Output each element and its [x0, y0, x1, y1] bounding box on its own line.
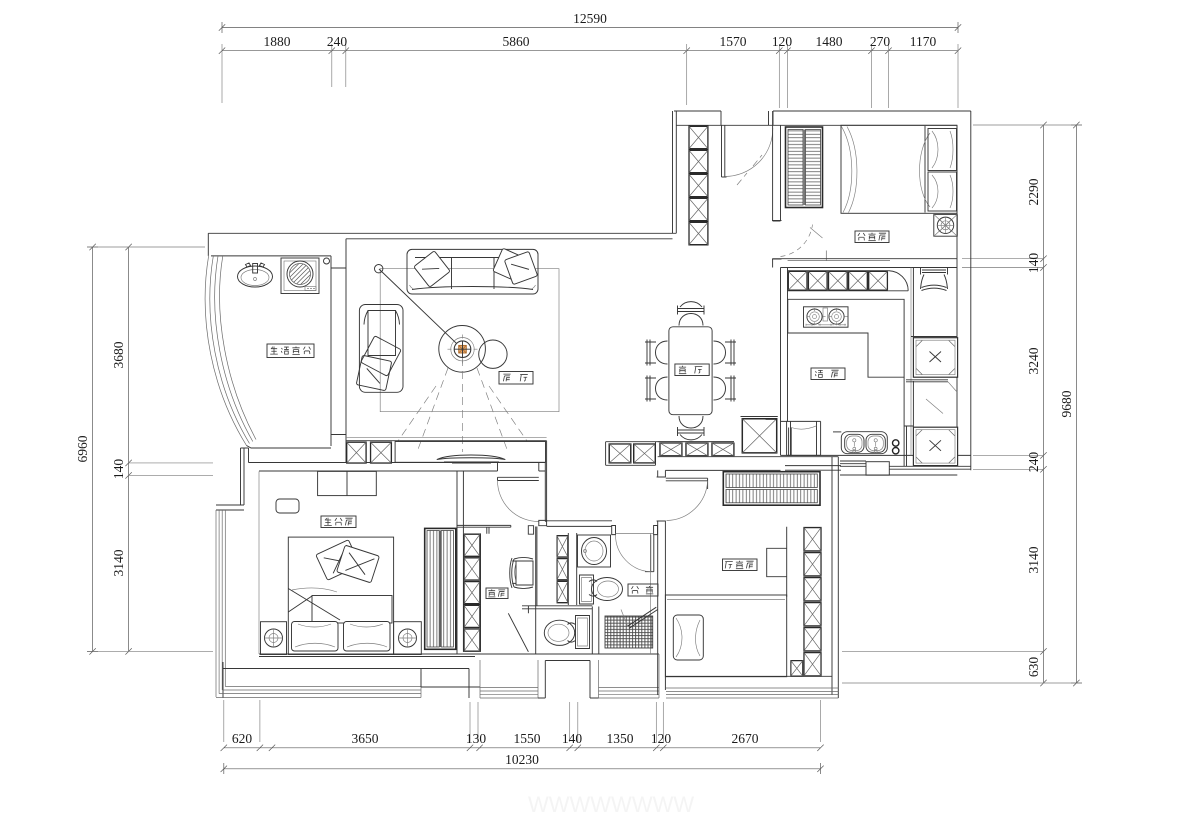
svg-text:140: 140 — [1026, 253, 1041, 274]
svg-text:140: 140 — [111, 459, 126, 480]
svg-text:1350: 1350 — [607, 731, 634, 746]
svg-text:1480: 1480 — [816, 34, 843, 49]
svg-text:2290: 2290 — [1026, 178, 1041, 205]
svg-text:1550: 1550 — [514, 731, 541, 746]
svg-text:5860: 5860 — [503, 34, 530, 49]
svg-text:2670: 2670 — [732, 731, 759, 746]
svg-text:3140: 3140 — [1026, 546, 1041, 573]
svg-text:140: 140 — [562, 731, 583, 746]
svg-text:WWWWWWWW: WWWWWWWW — [528, 792, 694, 817]
svg-text:3240: 3240 — [1026, 347, 1041, 374]
svg-text:620: 620 — [232, 731, 253, 746]
svg-text:3650: 3650 — [352, 731, 379, 746]
svg-text:6960: 6960 — [75, 435, 90, 462]
svg-text:240: 240 — [1026, 452, 1041, 473]
svg-text:3680: 3680 — [111, 341, 126, 368]
svg-text:3140: 3140 — [111, 549, 126, 576]
svg-text:630: 630 — [1026, 657, 1041, 678]
svg-text:1170: 1170 — [910, 34, 937, 49]
svg-text:10230: 10230 — [505, 752, 539, 767]
svg-text:1880: 1880 — [264, 34, 291, 49]
svg-text:240: 240 — [327, 34, 348, 49]
svg-text:120: 120 — [772, 34, 793, 49]
svg-text:130: 130 — [466, 731, 487, 746]
svg-text:1570: 1570 — [720, 34, 747, 49]
svg-text:120: 120 — [651, 731, 672, 746]
svg-text:270: 270 — [870, 34, 891, 49]
svg-text:9680: 9680 — [1059, 390, 1074, 417]
svg-text:12590: 12590 — [573, 11, 607, 26]
